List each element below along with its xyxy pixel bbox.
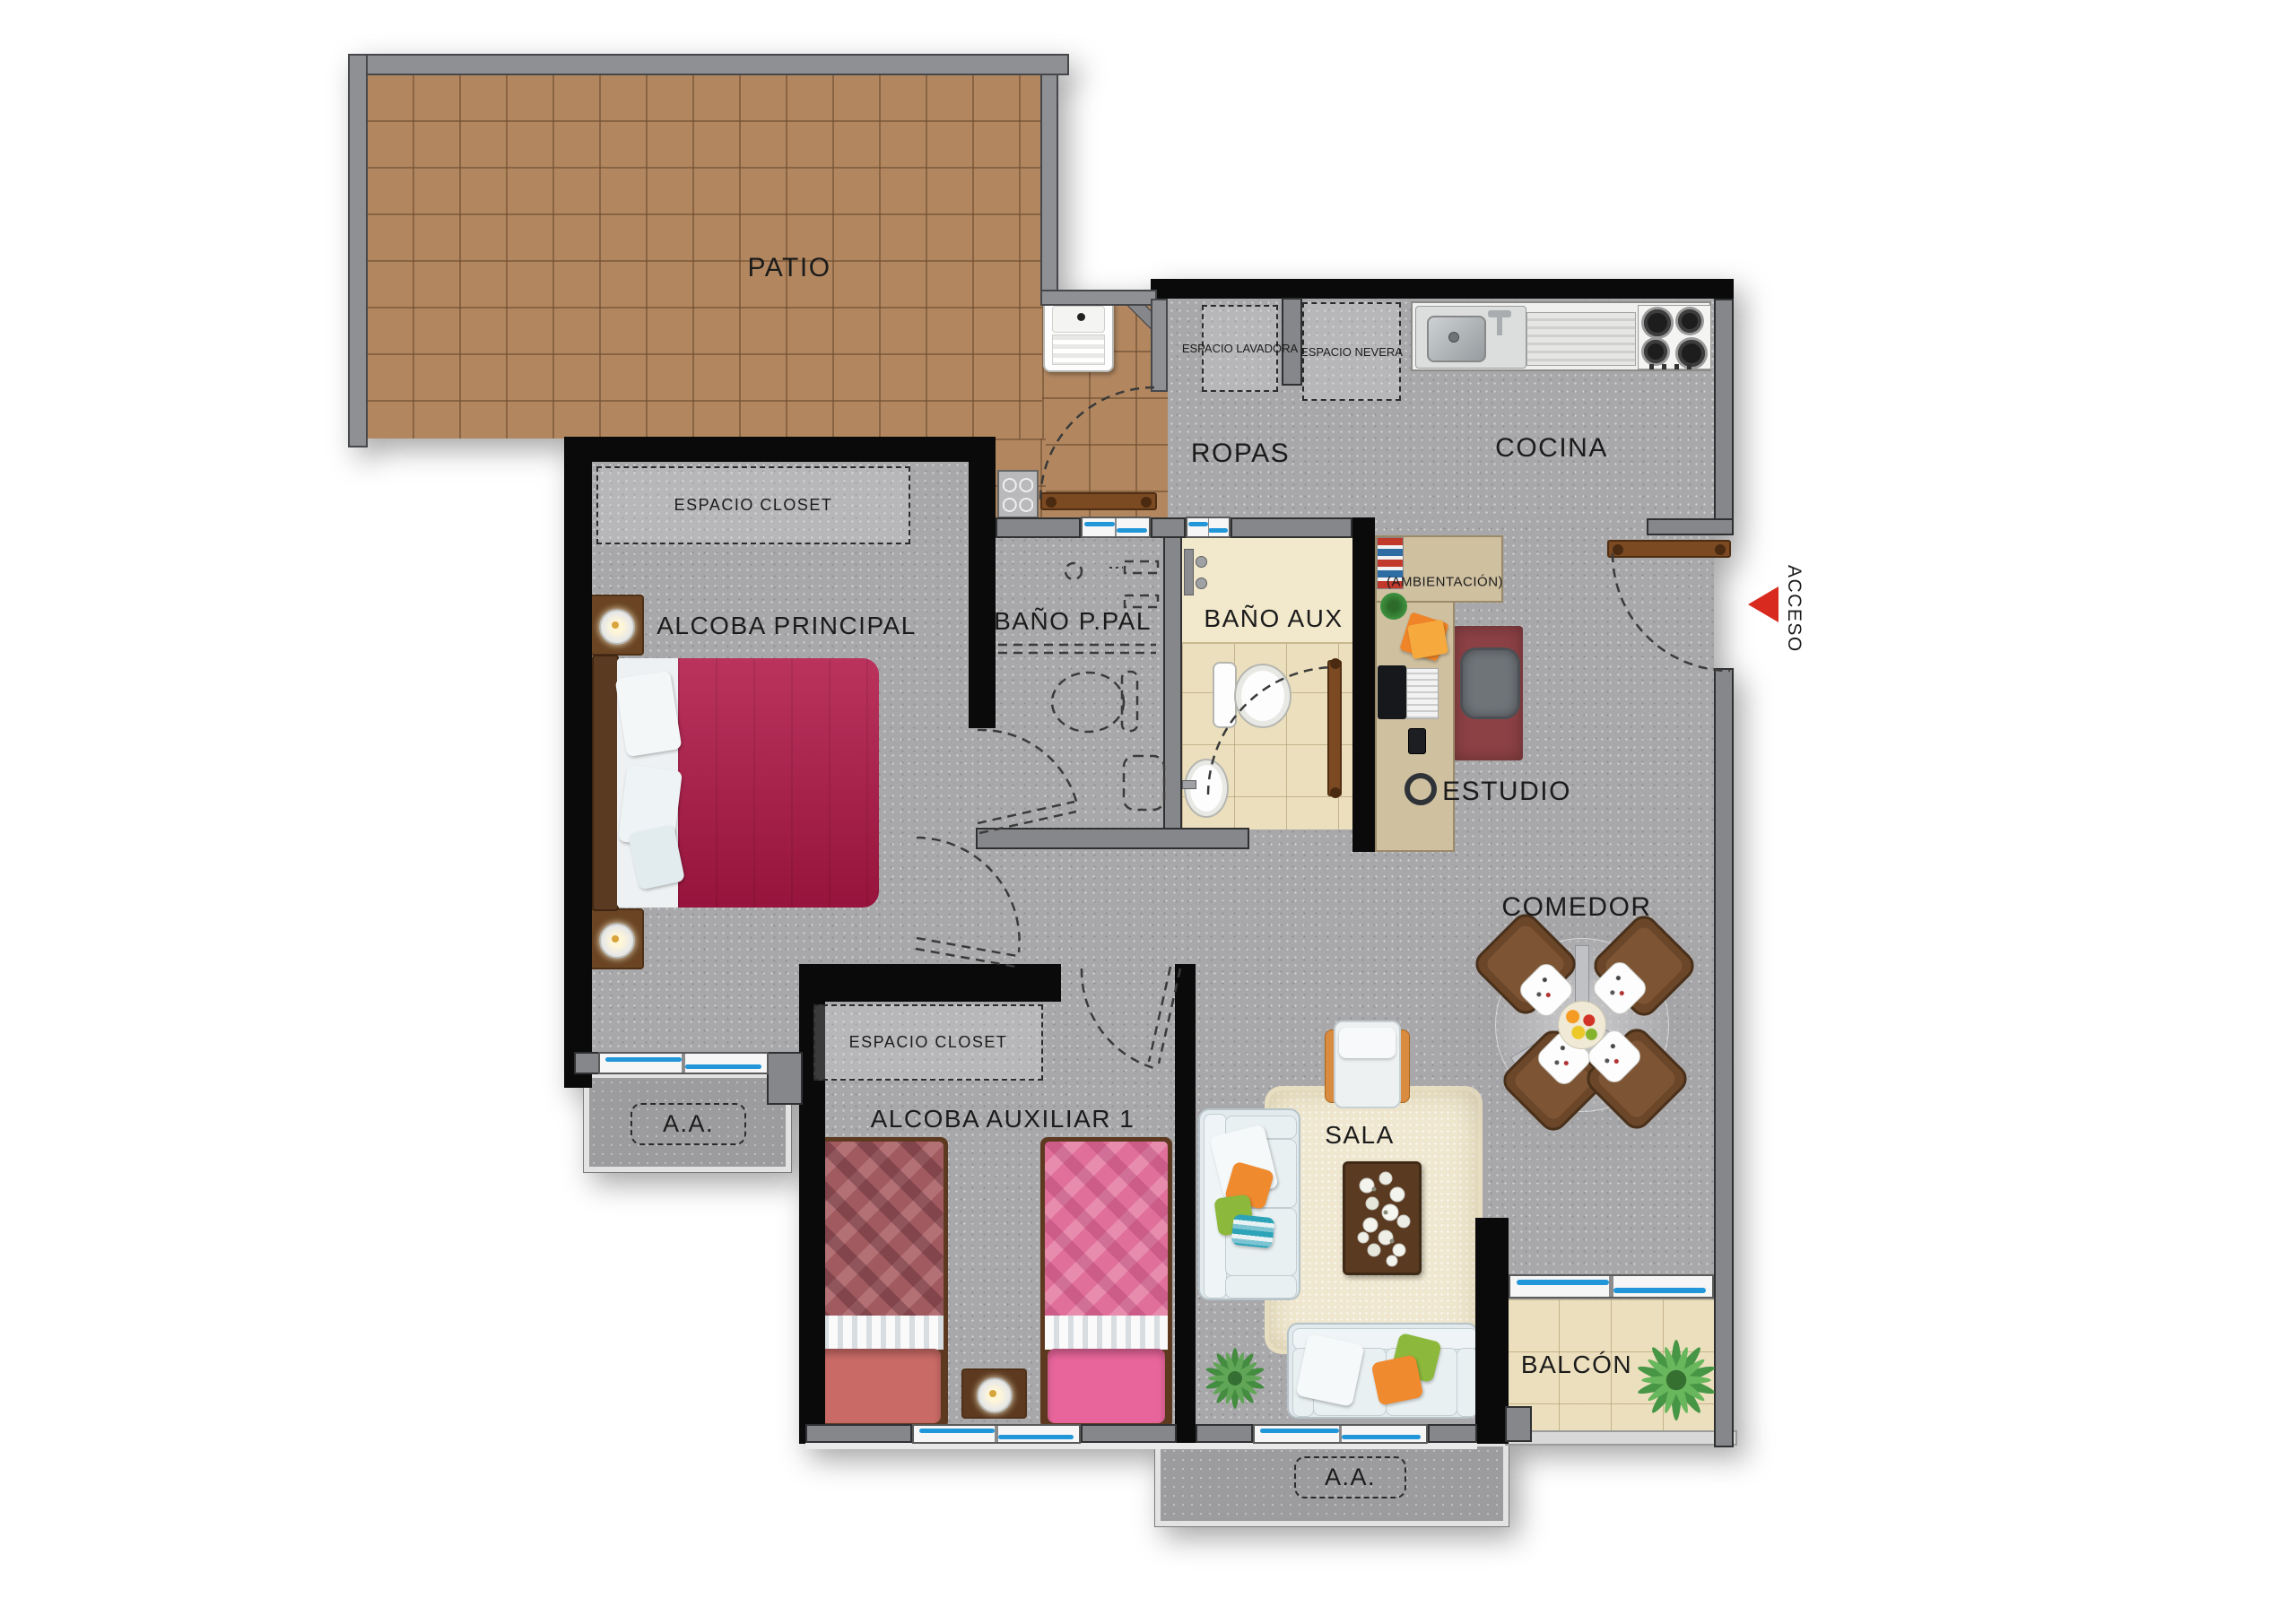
estudio-label: ESTUDIO — [1442, 777, 1571, 807]
bed-duvet — [678, 658, 879, 908]
blanket-teal — [1231, 1214, 1274, 1249]
window-alcoba-principal — [598, 1052, 769, 1074]
wall — [1040, 290, 1157, 306]
wall — [1475, 1218, 1509, 1444]
patio-door — [1040, 492, 1157, 510]
bano-aux-label: BAÑO AUX — [1204, 604, 1343, 633]
wall — [1040, 74, 1058, 291]
wall — [1151, 279, 1734, 299]
wall — [1714, 299, 1734, 535]
apartment-plan: ESPACIO LAVADORA ESPACIO NEVERA ESPACIO … — [0, 0, 2296, 1607]
exterior-sill — [805, 1443, 1477, 1449]
bano-aux-door — [1327, 660, 1342, 796]
laptop-icon — [1378, 665, 1406, 719]
lamp-icon — [977, 1377, 1013, 1413]
toilet-tank — [1213, 662, 1237, 728]
shower-handle-icon — [1196, 556, 1207, 568]
wall — [767, 1052, 803, 1105]
espacio-lavadora-label: ESPACIO LAVADORA — [1182, 342, 1298, 355]
ropas-label: ROPAS — [1191, 439, 1290, 469]
balcon-label: BALCÓN — [1521, 1351, 1632, 1379]
patio-floor — [366, 74, 1042, 439]
wall — [564, 437, 592, 1088]
coffee-table — [1343, 1161, 1422, 1275]
wall — [1151, 299, 1168, 392]
espacio-nevera-box: ESPACIO NEVERA — [1302, 302, 1401, 401]
wall — [976, 828, 1249, 849]
floor-plan-canvas: ESPACIO LAVADORA ESPACIO NEVERA ESPACIO … — [0, 0, 2296, 1607]
bano-ppal-label: BAÑO P.PAL — [994, 607, 1152, 636]
ambientacion-label: (AMBIENTACIÓN) — [1387, 575, 1503, 590]
wall — [1151, 517, 1186, 538]
shower-handle-icon — [1196, 578, 1207, 589]
window-bano-ppal — [1081, 517, 1151, 538]
shower-icon — [1184, 549, 1194, 595]
espacio-nevera-label: ESPACIO NEVERA — [1300, 345, 1403, 359]
wall — [348, 54, 368, 447]
sofa-left — [1198, 1108, 1300, 1300]
cocina-label: COCINA — [1495, 433, 1608, 464]
phone-icon — [1408, 728, 1426, 754]
espacio-lavadora-box: ESPACIO LAVADORA — [1202, 305, 1278, 392]
acceso-arrow-icon — [1748, 586, 1779, 622]
papers-orange — [1407, 620, 1448, 659]
balcon-railing — [1505, 1430, 1737, 1446]
sofa-bottom — [1287, 1323, 1478, 1419]
wall — [969, 437, 996, 728]
bed-principal — [592, 653, 881, 913]
headphones-icon — [1405, 773, 1437, 805]
wall — [574, 1052, 601, 1074]
lamp-icon — [599, 923, 635, 959]
aa-box-bottom: A.A. — [1294, 1456, 1406, 1498]
laundry-sink-icon — [1043, 299, 1114, 372]
wall — [1352, 517, 1375, 852]
alcoba-principal-label: ALCOBA PRINCIPAL — [657, 612, 917, 640]
alcoba-auxiliar-label: ALCOBA AUXILIAR 1 — [871, 1105, 1135, 1134]
wall — [1163, 536, 1182, 830]
lamp-icon — [599, 609, 635, 645]
pillow-orange — [1371, 1354, 1424, 1405]
desk-chair — [1460, 647, 1520, 719]
wall — [1428, 1424, 1477, 1443]
wall — [1231, 517, 1352, 538]
wall — [799, 964, 1061, 1002]
armchair — [1325, 1021, 1410, 1114]
espacio-closet-label: ESPACIO CLOSET — [674, 496, 833, 515]
wall-cap — [1505, 1406, 1532, 1442]
comedor-label: COMEDOR — [1501, 892, 1651, 923]
wall — [1714, 668, 1734, 1447]
window-balcon — [1509, 1274, 1714, 1299]
window-bano-aux — [1186, 517, 1231, 538]
fruit-bowl — [1558, 1001, 1606, 1049]
bed-aux-1 — [810, 1137, 948, 1429]
stove-icon — [1638, 305, 1711, 369]
toilet-bowl-icon — [1234, 664, 1291, 728]
wall — [1647, 518, 1734, 535]
wall — [1081, 1424, 1177, 1443]
water-heater-icon — [997, 470, 1039, 518]
aa-label: A.A. — [1325, 1464, 1376, 1491]
aa-label: A.A. — [663, 1110, 714, 1138]
wall — [348, 54, 1069, 75]
wall — [805, 1424, 912, 1443]
window-alcoba-aux — [912, 1424, 1081, 1444]
desk-plant-icon — [1380, 593, 1407, 620]
window-sala — [1253, 1424, 1428, 1444]
patio-label: PATIO — [747, 253, 831, 283]
laptop-keyboard — [1406, 668, 1439, 719]
bed-headboard — [592, 655, 619, 911]
kitchen-sink-icon — [1415, 306, 1526, 369]
drainboard — [1526, 312, 1636, 366]
aa-box-left: A.A. — [631, 1103, 746, 1145]
acceso-label: ACCESO — [1783, 565, 1805, 653]
espacio-closet-aux-label: ESPACIO CLOSET — [849, 1033, 1008, 1052]
sala-label: SALA — [1325, 1121, 1395, 1150]
wall — [1196, 1424, 1253, 1443]
wall — [1175, 964, 1196, 1444]
faucet-icon — [1182, 780, 1196, 789]
entry-door — [1607, 540, 1731, 558]
wall — [564, 437, 996, 462]
espacio-closet-aux-box: ESPACIO CLOSET — [813, 1004, 1043, 1081]
espacio-closet-principal-box: ESPACIO CLOSET — [596, 466, 910, 544]
wall — [996, 517, 1081, 538]
bed-aux-2 — [1040, 1137, 1172, 1429]
